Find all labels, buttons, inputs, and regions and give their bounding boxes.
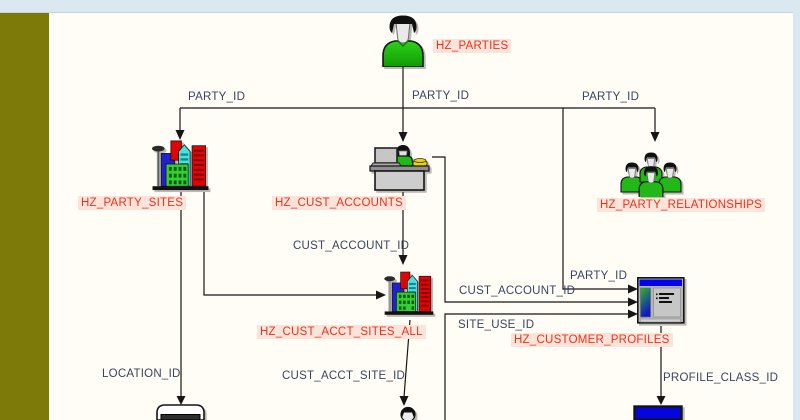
label-hz-party-relationships: HZ_PARTY_RELATIONSHIPS [597, 198, 765, 212]
label-cust-account-id-right: CUST_ACCOUNT_ID [459, 284, 575, 298]
label-party-id-profiles: PARTY_ID [570, 269, 627, 283]
diagram-page: HZ_PARTIES HZ_PARTY_SITES HZ_CUST_ACCOUN… [0, 0, 800, 420]
person-icon [381, 14, 425, 67]
top-strip [0, 0, 800, 13]
blue-bar-icon [633, 405, 685, 420]
right-strip [793, 0, 800, 420]
label-cust-account-id-mid: CUST_ACCOUNT_ID [293, 239, 409, 253]
location-box-icon [156, 404, 206, 420]
label-hz-customer-profiles: HZ_CUSTOMER_PROFILES [511, 333, 673, 347]
label-hz-cust-accounts: HZ_CUST_ACCOUNTS [272, 196, 406, 210]
label-cust-acct-site-id: CUST_ACCT_SITE_ID [282, 369, 405, 383]
label-hz-party-sites: HZ_PARTY_SITES [78, 196, 186, 210]
label-hz-cust-acct-sites-all: HZ_CUST_ACCT_SITES_ALL [257, 325, 426, 339]
profile-window-icon [637, 277, 687, 326]
buildings-icon [148, 138, 213, 192]
label-party-id-left: PARTY_ID [188, 90, 245, 104]
label-site-use-id: SITE_USE_ID [458, 318, 534, 332]
desk-person-icon [368, 143, 432, 192]
sidebar-olive-bar [0, 13, 49, 420]
person-head-icon [400, 406, 416, 420]
label-party-id-right: PARTY_ID [582, 90, 639, 104]
people-group-icon [619, 141, 683, 197]
label-profile-class-id: PROFILE_CLASS_ID [663, 371, 778, 385]
buildings-icon [383, 266, 435, 320]
label-location-id: LOCATION_ID [102, 367, 181, 381]
label-party-id-mid: PARTY_ID [412, 89, 469, 103]
label-hz-parties: HZ_PARTIES [433, 39, 511, 53]
